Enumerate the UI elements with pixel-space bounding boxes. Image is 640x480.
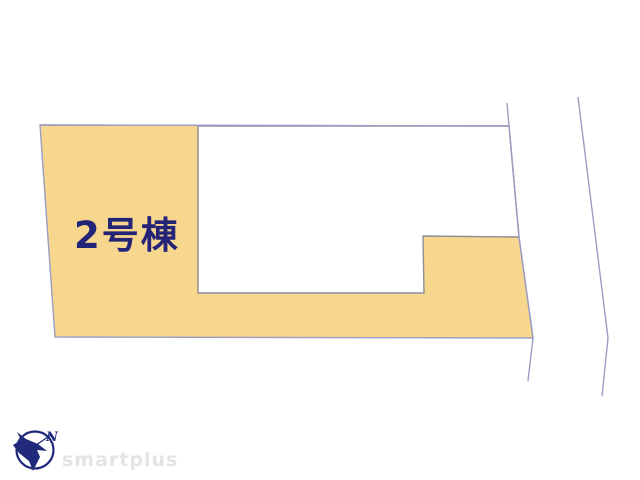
lot-label: 2号棟 <box>74 214 180 257</box>
compass-north-label: N <box>45 430 59 445</box>
lot-top-boundary-line <box>40 125 509 126</box>
bird-silhouette <box>13 432 47 471</box>
site-plan-drawing: 2号棟 N smartplus <box>0 0 640 480</box>
site-plan-canvas: 2号棟 N smartplus <box>0 0 640 480</box>
compass-bird-icon: N <box>13 430 59 471</box>
road-edge-line <box>578 97 608 396</box>
watermark-label: smartplus <box>62 449 178 471</box>
